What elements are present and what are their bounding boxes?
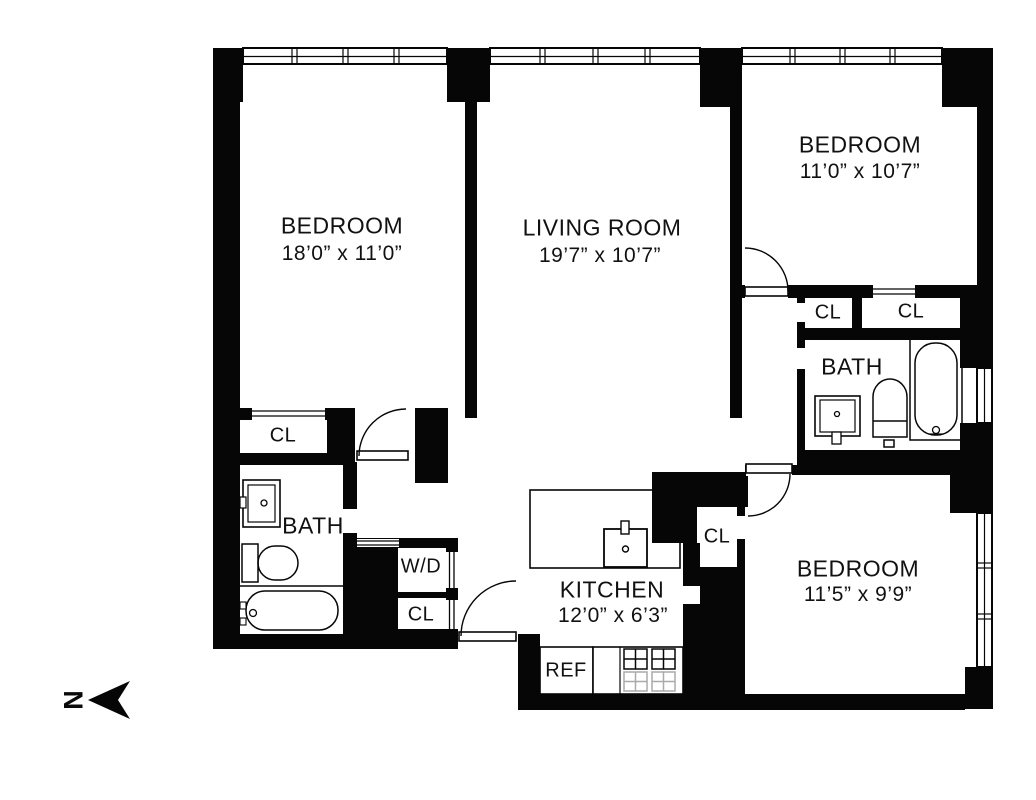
door-gap-bath-left xyxy=(343,504,357,538)
cl-kitchen-label: CL xyxy=(704,526,731,549)
door-entry-kitchen xyxy=(459,581,516,649)
door-gap-wd xyxy=(446,552,458,588)
window-band-living xyxy=(490,48,700,64)
north-arrow-icon xyxy=(88,681,130,719)
door-bedroom1 xyxy=(357,409,408,465)
closet-opening-bedroom2 xyxy=(873,286,915,297)
bathtub-left xyxy=(240,586,343,630)
plan-symbols xyxy=(0,0,1036,800)
kitchen-counter xyxy=(593,647,683,694)
door-gap-cl-kitchen xyxy=(737,511,745,544)
bedroom1-label: BEDROOM xyxy=(281,213,403,240)
living-room-label: LIVING ROOM xyxy=(523,215,682,242)
bath-right-label: BATH xyxy=(821,354,883,381)
window-bath-right xyxy=(965,368,992,423)
kitchen-sink xyxy=(604,521,647,567)
bedroom3-label: BEDROOM xyxy=(797,556,919,583)
bedroom1-dims: 18’0” x 11’0” xyxy=(282,242,403,266)
wd-label: W/D xyxy=(401,556,441,579)
bedroom2-dims: 11’0” x 10’7” xyxy=(800,160,921,184)
bath-left-label: BATH xyxy=(282,513,344,540)
cl-hall-label: CL xyxy=(815,302,842,325)
window-band-bedroom3 xyxy=(965,513,992,667)
opening-wd-top xyxy=(357,539,399,547)
bedroom3-dims: 11’5” x 9’9” xyxy=(804,583,912,607)
kitchen-island xyxy=(530,490,680,568)
bathtub-right xyxy=(910,338,962,440)
toilet-left xyxy=(242,544,298,582)
cl-bedroom2-label: CL xyxy=(898,301,925,324)
door-gap-cl-hall xyxy=(797,299,805,326)
bedroom2-label: BEDROOM xyxy=(799,132,921,159)
kitchen-dims: 12’0” x 6’3” xyxy=(558,604,668,628)
toilet-right xyxy=(873,379,907,447)
door-gap-kitchen-wall xyxy=(683,582,700,608)
window-band-bedroom2 xyxy=(742,48,942,64)
door-bedroom2 xyxy=(745,248,788,298)
cl-laundry-label: CL xyxy=(408,604,435,627)
kitchen-label: KITCHEN xyxy=(560,577,664,604)
sink-right xyxy=(815,396,860,444)
north-letter: N xyxy=(59,690,90,710)
living-room-dims: 19’7” x 10’7” xyxy=(539,244,661,268)
refrigerator-label: REF xyxy=(545,660,587,683)
window-band-bedroom1 xyxy=(243,48,447,64)
floor-plan: BEDROOM 18’0” x 11’0” LIVING ROOM 19’7” … xyxy=(0,0,1036,800)
door-gap-bath-right xyxy=(797,344,805,373)
door-gap-cl-laundry xyxy=(446,600,458,629)
sink-left xyxy=(240,480,280,527)
cl-bedroom1-label: CL xyxy=(270,425,297,448)
closet-opening-bedroom1 xyxy=(252,407,325,421)
door-bedroom3 xyxy=(746,463,792,516)
